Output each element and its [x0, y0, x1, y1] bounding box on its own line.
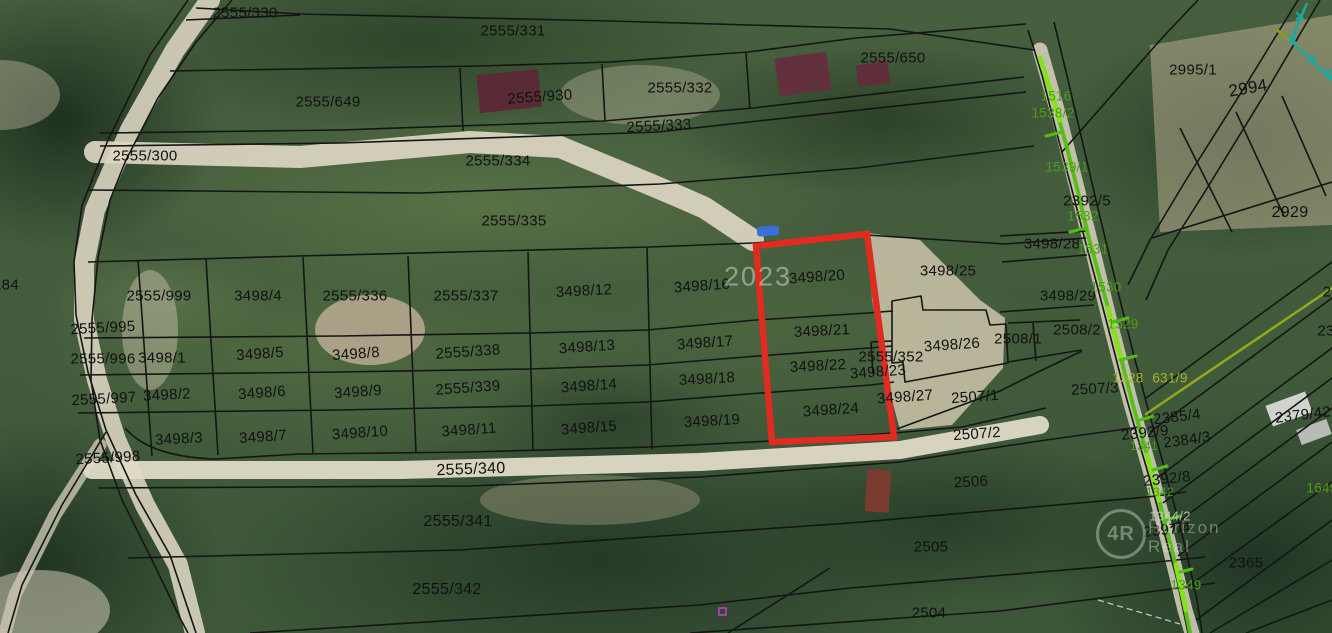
- parcel-label: 2555/341: [423, 514, 492, 530]
- parcel-label: 3498/1: [138, 351, 186, 366]
- parcel-label: 2507/2: [953, 425, 1002, 443]
- parcel-label: 3498/8: [332, 345, 381, 363]
- parcel-label: 1528: [1112, 371, 1143, 385]
- parcel-label: 2555/997: [71, 390, 137, 408]
- parcel-label: 3498/12: [555, 282, 612, 300]
- parcel-label: 2555/996: [71, 352, 136, 367]
- parcel-label: 3498/4: [234, 289, 282, 304]
- parcel-label: 2555/340: [436, 461, 506, 479]
- parcel-label: 3498/17: [676, 334, 733, 353]
- parcel-label: 2555/998: [75, 449, 141, 467]
- parcel-label: 3498/3: [155, 430, 203, 447]
- parcel-label: 3498/9: [334, 383, 383, 401]
- parcel-label: 2555/331: [481, 24, 546, 39]
- parcel-label: 2555/337: [434, 289, 499, 304]
- parcel-label: 2505: [914, 540, 949, 555]
- parcel-label: 1342: [1146, 486, 1174, 498]
- parcel-label: 3498/6: [238, 384, 287, 402]
- parcel-label: 3498/16: [673, 277, 730, 296]
- parcel-label: 3498/13: [558, 338, 615, 357]
- car-blue: [757, 225, 780, 237]
- parcel-label: 1529: [1107, 317, 1138, 331]
- parcel-label: 631/9: [1152, 371, 1187, 385]
- parcel-label: 3498/18: [678, 370, 735, 388]
- parcel-label: 1649: [1306, 481, 1332, 495]
- parcel-label: 2555/995: [70, 319, 136, 337]
- parcel-label: 2555/334: [466, 154, 531, 169]
- parcel-label: 2555/650: [861, 51, 926, 66]
- parcel-label: 3498/27: [876, 388, 933, 407]
- parcel-label: 1516: [1040, 89, 1071, 103]
- parcel-label: 2508/2: [1053, 323, 1101, 338]
- parcel-label: 3498/29: [1040, 289, 1096, 304]
- parcel-label: 1539/1: [1045, 160, 1088, 174]
- parcel-label: 2504: [912, 606, 947, 621]
- parcel-label: 2929: [1272, 205, 1309, 221]
- parcel-label: 3498/23: [849, 363, 906, 382]
- parcel-label: 2555/649: [296, 95, 361, 110]
- parcel-label: 1530: [1090, 280, 1121, 294]
- parcel-label: 3498/7: [239, 428, 288, 446]
- parcel-label: 3498/22: [789, 357, 846, 375]
- parcel-label: 3498/20: [788, 268, 845, 287]
- parcel-label: 2555/999: [127, 289, 192, 304]
- parcel-label: 2555/332: [648, 81, 713, 96]
- parcel-label: 3498/11: [441, 421, 497, 440]
- parcel-label: 3498/5: [236, 345, 285, 363]
- year-watermark: 2023: [724, 264, 792, 291]
- parcel-label: 2392/5: [1063, 194, 1111, 209]
- parcel-label: 2507/1: [951, 388, 1000, 406]
- parcel-label: 2555/336: [323, 289, 388, 304]
- parcel-label: 2365: [1229, 556, 1264, 571]
- parcel-label: 3498/19: [683, 412, 740, 430]
- parcel-label: 3498/14: [560, 377, 617, 396]
- parcel-label: 3498/2: [143, 386, 191, 403]
- parcel-label: 1532: [1067, 209, 1098, 223]
- parcel-label: 2: [1323, 285, 1332, 300]
- cadastral-map[interactable]: 2555/3302555/3312555/6502555/6492555/930…: [0, 0, 1332, 633]
- parcel-label: 1538/2: [1031, 106, 1074, 120]
- parcel-label: 2555/342: [412, 582, 481, 598]
- white-dashed-line: [1098, 600, 1180, 624]
- parcel-label: 3498/26: [923, 336, 980, 355]
- parcel-label: 2555/338: [435, 342, 501, 361]
- parcel-label: 3498/15: [560, 419, 617, 438]
- parcel-label: 2995/1: [1169, 63, 1217, 78]
- parcel-label: 2555/300: [113, 149, 178, 164]
- parcel-label: 1341: [1130, 440, 1158, 452]
- parcel-label: 3498/21: [793, 322, 850, 340]
- parcel-label: 3498/10: [331, 424, 388, 443]
- parcel-label: 1349: [1170, 578, 1201, 592]
- parcel-label: 3498/28: [1024, 237, 1080, 252]
- parcel-label: 23: [1317, 324, 1332, 339]
- parcel-label: 1531: [1077, 242, 1108, 256]
- parcel-label: 184: [0, 278, 19, 293]
- parcel-label: 2555/930: [507, 87, 573, 106]
- parcel-label: 2555/339: [435, 378, 501, 397]
- parcel-label: 2555/333: [626, 117, 692, 135]
- parcel-label: 1344/2: [1149, 510, 1191, 523]
- parcel-label: 2506: [953, 474, 988, 491]
- parcel-label: 2508/1: [994, 332, 1042, 347]
- parcel-label: 2555/335: [482, 214, 547, 229]
- parcel-label: 2555/330: [213, 6, 278, 21]
- parcel-label: 3498/25: [920, 264, 976, 279]
- magenta-marker: [719, 608, 726, 615]
- parcel-label: 3498/24: [802, 401, 859, 420]
